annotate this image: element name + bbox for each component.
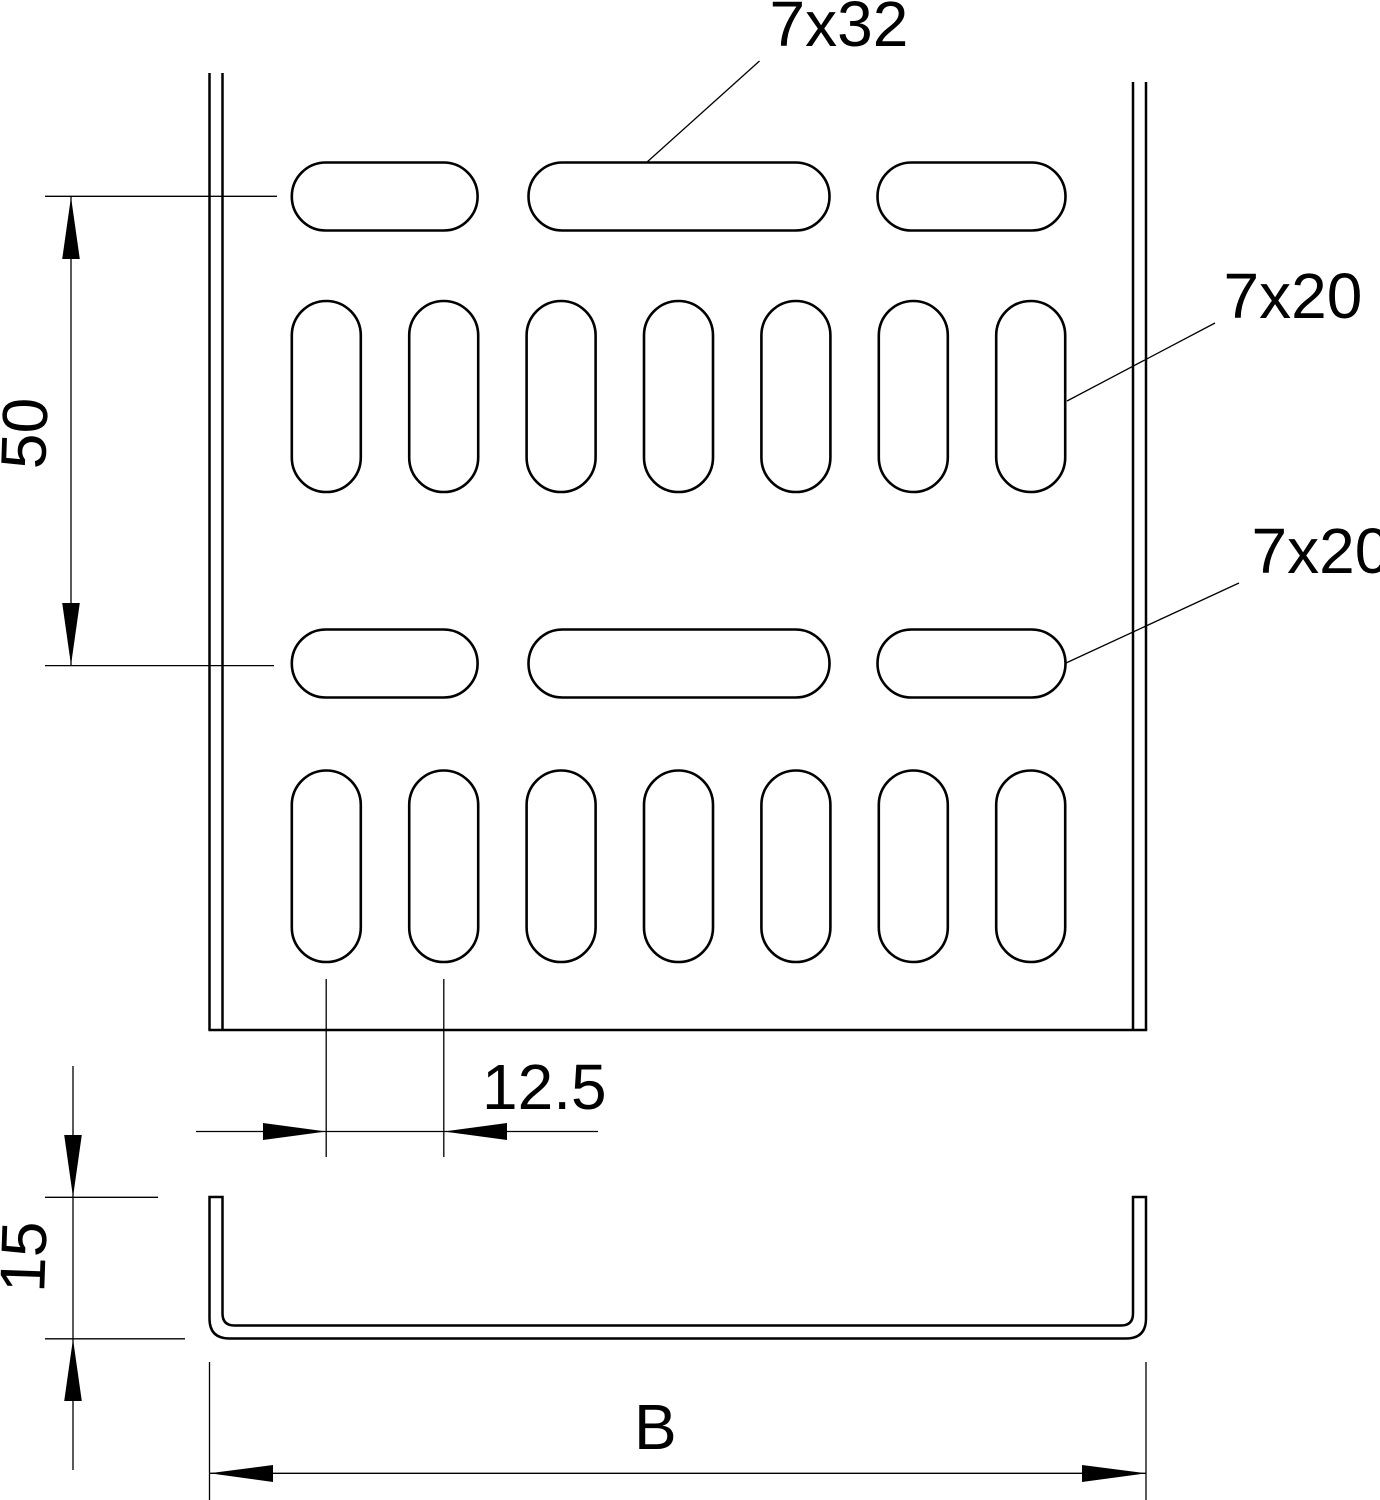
svg-text:B: B — [634, 1391, 677, 1463]
svg-text:7x20: 7x20 — [1252, 515, 1380, 587]
svg-text:7x20: 7x20 — [1224, 260, 1363, 332]
svg-text:15: 15 — [0, 1220, 61, 1294]
svg-text:7x32: 7x32 — [770, 0, 909, 60]
svg-text:50: 50 — [0, 396, 62, 470]
svg-text:12.5: 12.5 — [482, 1051, 607, 1123]
